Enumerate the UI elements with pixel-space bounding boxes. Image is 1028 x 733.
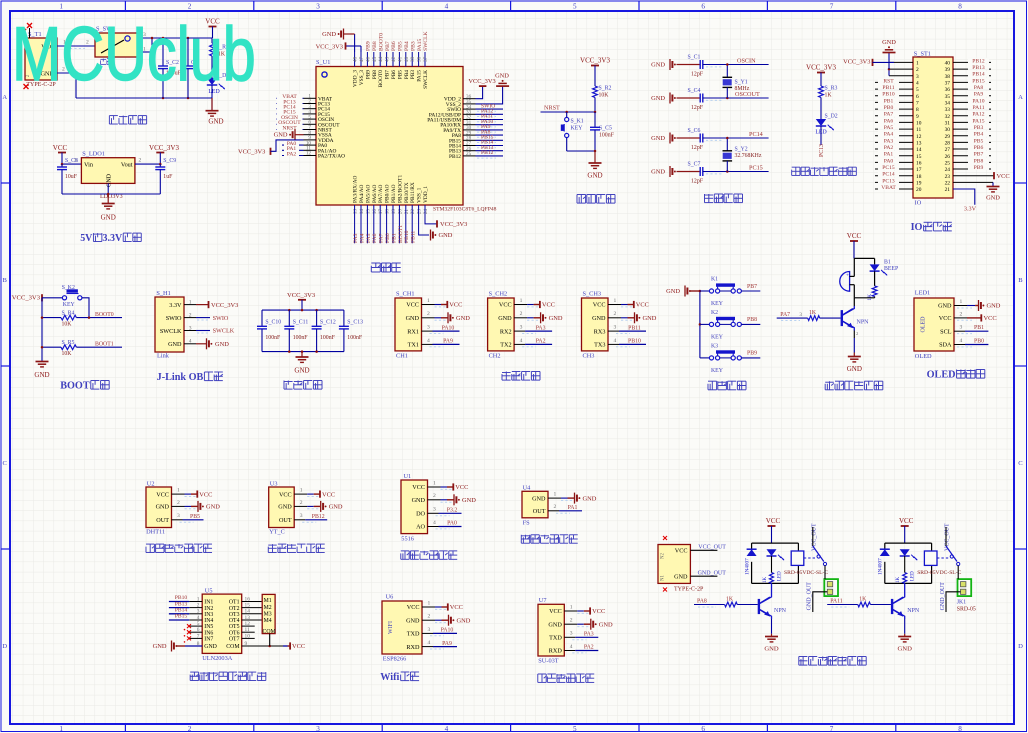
svg-text:GND: GND xyxy=(764,646,779,653)
svg-text:39: 39 xyxy=(410,56,416,62)
svg-text:PA3: PA3 xyxy=(353,233,359,243)
svg-text:23: 23 xyxy=(417,209,423,215)
svg-text:GND: GND xyxy=(168,341,182,348)
svg-text:GND: GND xyxy=(651,169,665,176)
svg-text:VCC: VCC xyxy=(899,517,914,525)
svg-text:PB8: PB8 xyxy=(747,317,757,323)
svg-text:NPN: NPN xyxy=(774,608,787,614)
svg-text:5: 5 xyxy=(573,725,577,733)
svg-text:SWIO: SWIO xyxy=(213,315,229,322)
svg-text:1: 1 xyxy=(554,492,557,498)
svg-text:OT5: OT5 xyxy=(229,624,240,630)
svg-text:6: 6 xyxy=(701,725,705,733)
svg-text:RXD: RXD xyxy=(406,644,420,651)
svg-text:BOOT: BOOT xyxy=(60,380,90,391)
svg-text:YT_C: YT_C xyxy=(269,529,285,536)
svg-text:BOOT0: BOOT0 xyxy=(378,33,384,51)
svg-text:VCC: VCC xyxy=(156,491,169,498)
svg-text:PB9: PB9 xyxy=(366,41,372,51)
svg-text:7: 7 xyxy=(830,3,834,11)
svg-text:VDD_3: VDD_3 xyxy=(353,70,359,87)
svg-text:PB2/BOOT1: PB2/BOOT1 xyxy=(397,175,403,203)
svg-text:SWIO: SWIO xyxy=(166,315,182,322)
svg-text:14: 14 xyxy=(359,209,365,215)
svg-text:GND_OUT: GND_OUT xyxy=(807,582,813,611)
svg-text:CH3: CH3 xyxy=(583,353,595,360)
svg-text:18: 18 xyxy=(916,174,922,180)
svg-text:GND: GND xyxy=(938,303,952,310)
svg-text:20: 20 xyxy=(397,209,403,215)
svg-text:VDD_1: VDD_1 xyxy=(423,186,429,203)
svg-text:GND: GND xyxy=(329,504,343,511)
svg-text:43: 43 xyxy=(385,56,391,62)
svg-text:GND: GND xyxy=(587,172,602,180)
svg-text:PB0: PB0 xyxy=(974,338,984,344)
svg-text:S_C5: S_C5 xyxy=(599,126,612,132)
svg-text:PA4/AO: PA4/AO xyxy=(359,185,365,203)
svg-text:OSCIN: OSCIN xyxy=(737,57,756,64)
svg-text:NRST: NRST xyxy=(544,105,560,112)
svg-text:S_C12: S_C12 xyxy=(320,320,336,326)
svg-text:38: 38 xyxy=(945,74,951,80)
svg-text:PA6: PA6 xyxy=(372,233,378,243)
svg-text:22: 22 xyxy=(410,209,416,215)
svg-text:12pF: 12pF xyxy=(691,179,704,185)
svg-text:8: 8 xyxy=(958,725,962,733)
svg-text:VCC_3V3: VCC_3V3 xyxy=(806,64,836,72)
svg-text:44: 44 xyxy=(378,56,384,62)
svg-text:GND: GND xyxy=(882,39,896,46)
svg-text:PB0: PB0 xyxy=(385,233,391,243)
svg-text:PA9: PA9 xyxy=(974,92,984,98)
svg-text:2: 2 xyxy=(520,311,523,317)
svg-text:13: 13 xyxy=(353,209,359,215)
svg-text:20: 20 xyxy=(916,187,922,193)
svg-text:U4: U4 xyxy=(523,484,532,491)
svg-text:2: 2 xyxy=(570,618,573,624)
svg-text:STM32F103C8T6_LQFP48: STM32F103C8T6_LQFP48 xyxy=(433,207,497,213)
svg-text:31: 31 xyxy=(945,121,951,127)
svg-text:2: 2 xyxy=(428,614,431,620)
svg-text:GND: GND xyxy=(651,95,665,102)
svg-text:PA6/AO: PA6/AO xyxy=(372,185,378,203)
svg-text:3: 3 xyxy=(960,325,963,331)
svg-text:IN7: IN7 xyxy=(204,637,213,643)
svg-text:DO: DO xyxy=(416,511,425,518)
svg-text:VCC: VCC xyxy=(636,302,649,309)
svg-text:1N4007: 1N4007 xyxy=(878,558,884,575)
svg-text:PB9: PB9 xyxy=(974,165,984,171)
svg-text:4: 4 xyxy=(916,81,919,87)
svg-text:34: 34 xyxy=(945,101,951,107)
svg-text:GND_OUT: GND_OUT xyxy=(698,570,727,576)
svg-text:C: C xyxy=(1018,460,1023,467)
svg-text:PA6: PA6 xyxy=(884,118,894,124)
svg-text:GND: GND xyxy=(643,315,657,322)
svg-text:100nF: 100nF xyxy=(293,335,309,341)
svg-text:OT2: OT2 xyxy=(229,606,240,612)
svg-text:U3: U3 xyxy=(270,480,278,487)
svg-text:PA2/TX/AO: PA2/TX/AO xyxy=(318,154,345,160)
svg-text:6: 6 xyxy=(701,3,705,11)
svg-text:1K: 1K xyxy=(763,577,768,584)
svg-text:S_R5: S_R5 xyxy=(62,340,75,346)
svg-text:GND: GND xyxy=(406,315,420,322)
svg-text:10uF: 10uF xyxy=(65,174,78,180)
svg-text:30: 30 xyxy=(945,127,951,133)
svg-text:7: 7 xyxy=(916,101,919,107)
svg-text:GND: GND xyxy=(156,504,170,511)
svg-text:PA7/AO: PA7/AO xyxy=(378,185,384,203)
svg-text:TXD: TXD xyxy=(549,635,562,642)
svg-text:OT4: OT4 xyxy=(229,618,240,624)
svg-text:4: 4 xyxy=(427,338,430,344)
svg-text:VCC: VCC xyxy=(542,302,555,309)
svg-text:IN1: IN1 xyxy=(204,600,213,606)
svg-text:OT3: OT3 xyxy=(229,612,240,618)
svg-text:5V: 5V xyxy=(80,233,93,244)
svg-text:GND: GND xyxy=(599,621,613,628)
svg-text:PB5: PB5 xyxy=(397,70,403,80)
svg-text:WIFI: WIFI xyxy=(388,621,394,634)
svg-text:IN4: IN4 xyxy=(204,618,213,624)
svg-text:41: 41 xyxy=(397,56,403,62)
svg-text:JK1: JK1 xyxy=(957,600,966,606)
svg-text:K3: K3 xyxy=(711,343,718,349)
svg-text:10: 10 xyxy=(916,121,922,127)
svg-text:5516: 5516 xyxy=(401,535,414,542)
svg-text:S_R4: S_R4 xyxy=(62,311,75,317)
svg-text:Wifi: Wifi xyxy=(380,672,399,683)
svg-text:IO: IO xyxy=(915,199,922,206)
svg-text:PB7: PB7 xyxy=(974,152,984,158)
svg-text:VCC: VCC xyxy=(766,517,781,525)
svg-text:VCC: VCC xyxy=(592,608,605,615)
svg-text:VCC_3V3: VCC_3V3 xyxy=(12,295,41,302)
svg-text:PB9: PB9 xyxy=(747,351,757,357)
svg-text:42: 42 xyxy=(391,56,397,62)
svg-text:U1: U1 xyxy=(404,473,412,480)
svg-text:S_Y2: S_Y2 xyxy=(735,146,748,152)
svg-text:2: 2 xyxy=(177,500,180,506)
svg-text:100nF: 100nF xyxy=(599,133,615,139)
svg-text:8: 8 xyxy=(916,107,919,113)
svg-text:VCC: VCC xyxy=(675,548,688,555)
svg-text:PB12: PB12 xyxy=(972,58,985,64)
svg-text:37: 37 xyxy=(945,81,951,87)
svg-text:25: 25 xyxy=(466,151,472,157)
svg-text:VCC: VCC xyxy=(455,484,468,491)
svg-text:S_K1: S_K1 xyxy=(571,119,584,125)
svg-text:PB3: PB3 xyxy=(410,70,416,80)
svg-text:J-Link OB: J-Link OB xyxy=(157,372,204,383)
svg-text:PB13: PB13 xyxy=(175,601,188,607)
svg-text:PB5: PB5 xyxy=(190,514,200,520)
svg-text:12pF: 12pF xyxy=(691,105,704,111)
svg-text:PA1: PA1 xyxy=(568,505,578,511)
svg-text:SRD-05: SRD-05 xyxy=(957,606,976,612)
svg-text:PA15: PA15 xyxy=(417,39,423,51)
svg-text:SU-03T: SU-03T xyxy=(538,658,558,665)
svg-text:PC14: PC14 xyxy=(882,172,895,178)
svg-text:5: 5 xyxy=(916,87,919,93)
svg-text:PC13: PC13 xyxy=(819,144,825,157)
svg-text:15: 15 xyxy=(365,209,371,215)
svg-text:1K: 1K xyxy=(726,596,734,602)
svg-text:1K: 1K xyxy=(825,93,833,99)
svg-text:S_LDO1: S_LDO1 xyxy=(82,150,105,157)
svg-text:MCUclub: MCUclub xyxy=(12,12,256,97)
svg-text:GND: GND xyxy=(101,214,116,222)
svg-text:OLED: OLED xyxy=(915,353,932,360)
svg-text:4: 4 xyxy=(433,520,436,526)
svg-text:PB9: PB9 xyxy=(365,70,371,80)
svg-text:B: B xyxy=(2,277,7,284)
svg-text:IN3: IN3 xyxy=(204,612,213,618)
svg-text:S_D2: S_D2 xyxy=(825,114,838,120)
svg-text:1: 1 xyxy=(428,600,431,606)
svg-text:PA3/RX/AO: PA3/RX/AO xyxy=(353,176,359,203)
svg-text:4: 4 xyxy=(445,3,449,11)
svg-text:21: 21 xyxy=(404,209,410,215)
svg-text:RX1: RX1 xyxy=(407,328,419,335)
svg-text:CH2: CH2 xyxy=(489,353,501,360)
svg-text:VCC: VCC xyxy=(406,302,419,309)
svg-text:U7: U7 xyxy=(539,597,547,604)
svg-text:14: 14 xyxy=(916,147,922,153)
svg-text:38: 38 xyxy=(417,56,423,62)
svg-text:3.3V: 3.3V xyxy=(103,233,123,244)
svg-text:RX3: RX3 xyxy=(594,328,606,335)
svg-text:PB6: PB6 xyxy=(391,70,397,80)
svg-text:1: 1 xyxy=(300,488,303,494)
svg-text:PB0/AO: PB0/AO xyxy=(385,184,391,203)
svg-text:48: 48 xyxy=(353,56,359,62)
svg-text:1: 1 xyxy=(614,298,617,304)
svg-text:ULN2003A: ULN2003A xyxy=(202,655,233,662)
svg-text:GND: GND xyxy=(294,367,309,375)
svg-text:OUT: OUT xyxy=(279,517,292,524)
svg-text:PA2: PA2 xyxy=(287,151,297,157)
svg-text:24: 24 xyxy=(423,209,429,215)
svg-text:S_C6: S_C6 xyxy=(688,128,701,134)
svg-text:PA15: PA15 xyxy=(417,70,423,82)
svg-text:7: 7 xyxy=(830,725,834,733)
svg-text:VCC_3V3: VCC_3V3 xyxy=(211,302,238,309)
svg-text:OT1: OT1 xyxy=(229,600,240,606)
svg-text:Vout: Vout xyxy=(121,161,133,168)
svg-text:36: 36 xyxy=(945,87,951,93)
svg-text:LED1: LED1 xyxy=(915,290,930,297)
svg-text:FS: FS xyxy=(523,519,531,526)
svg-text:1: 1 xyxy=(433,480,436,486)
svg-text:12: 12 xyxy=(916,134,922,140)
svg-text:OLED: OLED xyxy=(927,369,956,380)
svg-text:PA0: PA0 xyxy=(447,521,457,527)
svg-text:OLED: OLED xyxy=(921,316,927,333)
svg-text:GND: GND xyxy=(215,341,229,348)
svg-text:S_CH2: S_CH2 xyxy=(489,291,508,298)
svg-text:A: A xyxy=(2,94,7,101)
svg-text:M2: M2 xyxy=(264,605,272,611)
svg-text:PB8: PB8 xyxy=(372,41,378,51)
svg-text:PA4: PA4 xyxy=(359,233,365,243)
svg-text:37: 37 xyxy=(423,56,429,62)
svg-text:2: 2 xyxy=(188,3,192,11)
svg-text:8MHz: 8MHz xyxy=(735,86,750,92)
svg-text:KEY: KEY xyxy=(571,126,584,132)
svg-text:10K: 10K xyxy=(62,322,73,328)
svg-text:3: 3 xyxy=(433,507,436,513)
svg-text:40: 40 xyxy=(945,61,951,67)
svg-text:9: 9 xyxy=(916,114,919,120)
svg-text:1K: 1K xyxy=(896,577,901,584)
svg-text:PB7: PB7 xyxy=(385,70,391,80)
svg-text:PA5: PA5 xyxy=(884,125,894,131)
svg-text:PA3: PA3 xyxy=(884,138,894,144)
svg-text:PB11: PB11 xyxy=(882,85,894,91)
svg-text:VCC: VCC xyxy=(984,315,997,322)
svg-text:4: 4 xyxy=(570,644,573,650)
svg-text:18: 18 xyxy=(385,209,391,215)
svg-text:GND: GND xyxy=(412,497,426,504)
svg-text:PB12: PB12 xyxy=(481,150,494,156)
svg-text:PA11: PA11 xyxy=(972,105,984,111)
svg-text:PB7: PB7 xyxy=(747,284,757,290)
svg-text:VCC: VCC xyxy=(292,643,305,650)
svg-text:1: 1 xyxy=(520,298,523,304)
svg-text:NPN: NPN xyxy=(857,320,870,326)
svg-text:4: 4 xyxy=(520,338,523,344)
svg-text:GND: GND xyxy=(651,135,665,142)
svg-text:3: 3 xyxy=(316,3,320,11)
svg-text:BOOT0: BOOT0 xyxy=(95,312,114,318)
svg-text:RX2: RX2 xyxy=(500,328,512,335)
svg-text:15: 15 xyxy=(916,154,922,160)
svg-text:S_CH1: S_CH1 xyxy=(396,291,415,298)
svg-text:GND: GND xyxy=(439,232,453,239)
svg-text:C: C xyxy=(2,460,7,467)
svg-text:RST: RST xyxy=(883,78,894,84)
svg-text:IO: IO xyxy=(911,222,923,233)
svg-text:S_R2: S_R2 xyxy=(599,86,612,92)
svg-text:S_CH3: S_CH3 xyxy=(583,291,602,298)
svg-text:IN2: IN2 xyxy=(204,606,213,612)
svg-text:3: 3 xyxy=(614,325,617,331)
svg-text:S_C10: S_C10 xyxy=(265,320,281,326)
svg-text:GND: GND xyxy=(987,303,1001,310)
svg-text:GND: GND xyxy=(583,495,597,502)
svg-text:16: 16 xyxy=(372,209,378,215)
svg-text:GND: GND xyxy=(495,73,509,80)
svg-text:GND: GND xyxy=(456,315,470,322)
svg-text:AO: AO xyxy=(416,524,425,531)
svg-text:N1: N1 xyxy=(661,574,666,580)
svg-text:PB3: PB3 xyxy=(410,41,416,51)
svg-text:VCC_3V3: VCC_3V3 xyxy=(843,58,870,65)
svg-text:N2: N2 xyxy=(661,552,666,558)
svg-text:VCC_OUT: VCC_OUT xyxy=(945,523,951,551)
svg-text:12pF: 12pF xyxy=(691,145,704,151)
svg-text:S_C1: S_C1 xyxy=(688,54,701,60)
svg-text:PA3: PA3 xyxy=(536,325,546,331)
svg-text:26: 26 xyxy=(945,154,951,160)
svg-text:COM: COM xyxy=(226,644,239,650)
svg-text:1: 1 xyxy=(570,604,573,610)
svg-text:ESP8266: ESP8266 xyxy=(383,656,406,663)
svg-text:PA2: PA2 xyxy=(884,145,894,151)
svg-text:K2: K2 xyxy=(711,310,718,316)
svg-text:1: 1 xyxy=(59,3,63,11)
svg-text:GND: GND xyxy=(532,495,546,502)
svg-text:PB5: PB5 xyxy=(398,41,404,51)
svg-text:PB15: PB15 xyxy=(972,78,985,84)
svg-text:U5: U5 xyxy=(205,587,213,594)
svg-text:28: 28 xyxy=(945,141,951,147)
svg-text:PB5: PB5 xyxy=(974,138,984,144)
svg-text:1: 1 xyxy=(177,488,180,494)
svg-text:VCC: VCC xyxy=(847,232,862,240)
svg-text:GND: GND xyxy=(651,62,665,69)
svg-text:22: 22 xyxy=(945,181,951,187)
svg-text:PA3: PA3 xyxy=(584,632,594,638)
svg-text:32.768KHz: 32.768KHz xyxy=(735,153,762,159)
svg-text:5: 5 xyxy=(573,3,577,11)
svg-text:GND: GND xyxy=(462,497,476,504)
svg-text:10K: 10K xyxy=(62,351,73,357)
svg-text:DHT11: DHT11 xyxy=(146,529,165,536)
svg-text:2: 2 xyxy=(554,504,557,510)
svg-text:PB1: PB1 xyxy=(391,233,397,243)
svg-text:2: 2 xyxy=(916,67,919,73)
svg-text:VCC: VCC xyxy=(593,302,606,309)
svg-text:PA12: PA12 xyxy=(972,112,984,118)
svg-text:45: 45 xyxy=(372,56,378,62)
svg-text:PB11: PB11 xyxy=(411,231,417,243)
svg-text:PC13: PC13 xyxy=(882,178,895,184)
svg-text:BOOT1: BOOT1 xyxy=(95,341,114,347)
svg-text:3: 3 xyxy=(520,325,523,331)
svg-text:PB1: PB1 xyxy=(884,98,894,104)
svg-text:29: 29 xyxy=(945,134,951,140)
svg-text:B: B xyxy=(1018,277,1023,284)
svg-text:SCL: SCL xyxy=(940,328,952,335)
svg-text:D: D xyxy=(2,643,7,650)
svg-text:25: 25 xyxy=(945,161,951,167)
svg-text:GND: GND xyxy=(204,644,217,650)
svg-text:1K: 1K xyxy=(859,596,867,602)
svg-text:PB15: PB15 xyxy=(175,614,188,620)
svg-text:1K: 1K xyxy=(809,310,817,316)
svg-text:PA7: PA7 xyxy=(884,112,894,118)
svg-text:3.3V: 3.3V xyxy=(964,206,977,213)
svg-text:PA11: PA11 xyxy=(830,598,843,604)
svg-text:VCC: VCC xyxy=(279,491,292,498)
svg-text:GND: GND xyxy=(674,573,688,580)
svg-text:PA7: PA7 xyxy=(379,233,385,243)
svg-text:1: 1 xyxy=(427,298,430,304)
svg-text:VCC: VCC xyxy=(53,144,68,152)
svg-text:RXD: RXD xyxy=(549,648,563,655)
svg-text:PB8: PB8 xyxy=(372,70,378,80)
svg-text:S_C8: S_C8 xyxy=(65,158,78,164)
svg-text:24: 24 xyxy=(945,167,951,173)
svg-text:PB10: PB10 xyxy=(175,595,188,601)
svg-text:40: 40 xyxy=(404,56,410,62)
svg-text:3: 3 xyxy=(799,312,802,318)
svg-text:PB11/RX: PB11/RX xyxy=(410,182,416,203)
svg-text:1: 1 xyxy=(59,725,63,733)
